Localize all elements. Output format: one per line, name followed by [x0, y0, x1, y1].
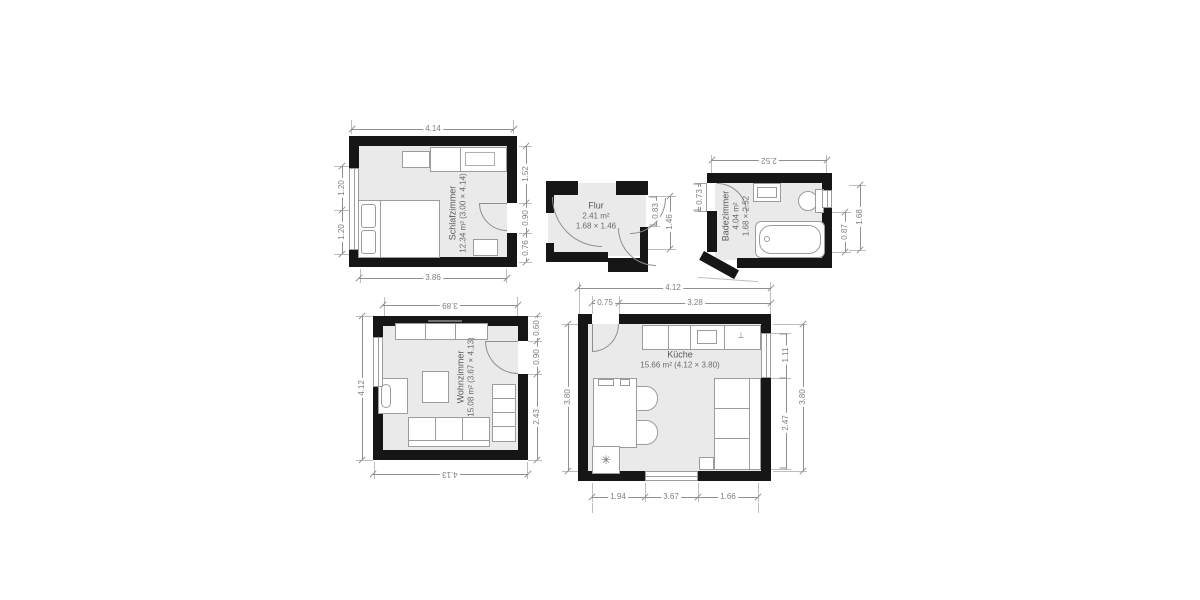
ext-line: [698, 483, 699, 502]
shelf-divider: [493, 412, 515, 413]
room-label-schlafzimmer: Schlafzimmer 12.34 m² (3.00 × 4.14): [447, 173, 468, 252]
window-pane-line: [827, 191, 828, 207]
tv: [428, 320, 462, 322]
shelf: [492, 384, 516, 442]
table-setting: [620, 379, 630, 386]
sink-basin: [757, 187, 777, 198]
window-pane-line: [766, 334, 767, 377]
dim-label: 3.28: [685, 299, 705, 307]
dresser: [402, 151, 430, 168]
room-label-kueche: Küche 15.66 m² (4.12 × 3.80): [640, 349, 719, 370]
sofa-cushion-divider: [715, 408, 749, 409]
faucet-symbol: ⊥: [738, 332, 745, 340]
counter-divider: [668, 326, 669, 349]
schlafzimmer-wall-bottom: [349, 257, 517, 267]
dim-tick: [524, 470, 531, 477]
sofa-back-line: [749, 379, 750, 469]
kitchen-sink: [697, 330, 717, 344]
dim-label: 4.12: [663, 284, 683, 292]
badezimmer-wall-right-upper: [822, 173, 832, 190]
badezimmer-wall-top: [707, 173, 832, 183]
window-wohnzimmer: [373, 337, 383, 387]
schlafzimmer-wall-right-lower: [507, 233, 517, 257]
room-name: Schlafzimmer: [447, 173, 458, 252]
ext-line: [592, 503, 593, 513]
dim-hook: [780, 378, 787, 379]
dim-label: 2.43: [533, 407, 541, 427]
flur-wall-bottom-left: [546, 252, 608, 262]
pillow: [361, 230, 376, 254]
floor-plan: Schlafzimmer 12.34 m² (3.00 × 4.14) 4.14…: [0, 0, 1200, 600]
wohnzimmer-wall-right-upper: [518, 326, 528, 341]
chair: [636, 386, 658, 411]
dim-tick: [767, 284, 774, 291]
bathtub-drain: [764, 236, 770, 242]
window-kueche: [761, 333, 771, 378]
armchair-cushion: [381, 384, 391, 408]
room-area: 15.08 m² (3.67 × 4.13): [467, 337, 477, 416]
ext-line: [562, 324, 578, 325]
window-schlafzimmer: [349, 168, 359, 250]
bedside-desk: [473, 239, 498, 256]
dim-label: 2.47: [782, 413, 790, 433]
badezimmer-wall-left: [707, 211, 717, 252]
sofa-divider: [435, 418, 436, 440]
room-name: Flur: [576, 200, 616, 211]
room-label-badezimmer: Badezimmer 4.04 m² 1.68 × 2.52: [720, 191, 751, 242]
ext-line: [592, 296, 593, 314]
door-threshold-line: [646, 476, 697, 477]
ext-line: [562, 471, 578, 472]
dim-tick: [510, 125, 517, 132]
kueche-wall-top-main: [619, 314, 771, 324]
wardrobe-shelf: [465, 152, 495, 166]
kitchen-sofa: [714, 378, 761, 470]
dim-tick: [767, 299, 774, 306]
room-area: 2.41 m²: [576, 212, 616, 222]
dim-hook: [780, 334, 787, 335]
dim-label: 1.68: [856, 207, 864, 227]
dim-label: 2.52: [759, 156, 779, 164]
room-size: 1.68 × 2.52: [742, 191, 752, 242]
wohnzimmer-wall-left-upper: [373, 326, 383, 337]
wohnzimmer-wall-bottom: [373, 450, 528, 460]
dim-label: 4.14: [423, 125, 443, 133]
badezimmer-wall-bottom: [737, 258, 832, 268]
dim-hook: [694, 210, 701, 211]
ext-line: [619, 296, 620, 314]
shelf-divider: [493, 398, 515, 399]
dim-label: 0.60: [533, 318, 541, 338]
ext-line: [592, 483, 593, 502]
dim-hook: [780, 468, 787, 469]
dim-label: 0.90: [522, 208, 530, 228]
sofa-cushion-divider: [715, 438, 749, 439]
sideboard-divider: [425, 324, 426, 339]
room-label-wohnzimmer: Wohnzimmer 15.08 m² (3.67 × 4.13): [455, 337, 476, 416]
ext-line: [758, 503, 759, 513]
dim-label: 1.66: [718, 493, 738, 501]
room-name: Badezimmer: [720, 191, 731, 242]
dim-label: 1.52: [522, 164, 530, 184]
sofa-seat-line: [409, 440, 489, 441]
table-setting: [598, 379, 614, 386]
wohnzimmer-wall-right-lower: [518, 374, 528, 450]
shelf-divider: [493, 426, 515, 427]
schlafzimmer-wall-top: [349, 136, 517, 146]
schlafzimmer-wall-right-upper: [507, 146, 517, 203]
dim-label: 4.13: [440, 470, 460, 478]
ext-line: [527, 462, 528, 479]
dim-hook: [650, 197, 657, 198]
kueche-balcony-door: [645, 471, 698, 481]
bed-blanket-line: [380, 201, 381, 257]
kueche-wall-bottom-right: [698, 471, 771, 481]
dim-label: 1.11: [782, 346, 790, 365]
ext-line: [758, 483, 759, 502]
kueche-wall-left: [578, 314, 588, 481]
dim-label: 1.94: [608, 493, 628, 501]
dim-tick: [823, 156, 830, 163]
counter-divider: [690, 326, 691, 349]
dim-label: 3.67: [661, 493, 681, 501]
dim-hook: [650, 225, 657, 226]
room-area: 12.34 m² (3.00 × 4.14): [459, 173, 469, 252]
kueche-wall-right-lower: [761, 378, 771, 481]
dim-label: 0.87: [841, 222, 849, 242]
ext-line: [698, 277, 758, 282]
counter-divider: [724, 326, 725, 349]
ext-line: [384, 297, 385, 316]
kueche-wall-right-upper: [761, 314, 771, 333]
freezer-icon: ✳: [601, 454, 611, 466]
dim-label: 1.20: [338, 178, 346, 198]
room-size: 1.68 × 1.46: [576, 222, 616, 232]
room-label-flur: Flur 2.41 m² 1.68 × 1.46: [576, 200, 616, 231]
dim-tick: [514, 301, 521, 308]
dim-label: 3.89: [440, 301, 460, 309]
window-pane-line: [354, 169, 355, 249]
room-name: Küche: [640, 349, 719, 360]
window-badezimmer: [822, 190, 832, 208]
dim-label: 0.83: [652, 201, 660, 221]
side-table: [699, 457, 714, 470]
ext-line: [645, 483, 646, 502]
dim-label: 3.80: [564, 387, 572, 407]
dining-table: [593, 378, 637, 448]
dim-label: 3.86: [423, 274, 443, 282]
dim-label: 1.20: [338, 222, 346, 242]
flur-wall-top-right: [616, 181, 648, 195]
sofa: [408, 417, 490, 447]
coffee-table: [422, 371, 449, 403]
dim-label: 0.90: [533, 347, 541, 367]
dim-label: 0.76: [522, 238, 530, 258]
pillow: [361, 204, 376, 228]
dim-label: 3.80: [799, 387, 807, 407]
chair: [636, 420, 658, 445]
room-name: Wohnzimmer: [455, 337, 466, 416]
window-pane-line: [378, 338, 379, 386]
dim-label: 1.46: [666, 212, 674, 232]
dim-label: 4.12: [358, 378, 366, 398]
sofa-divider: [462, 418, 463, 440]
dim-label: 0.73: [696, 187, 704, 207]
ext-line: [771, 469, 791, 470]
wardrobe-divider: [460, 148, 461, 171]
dim-hook: [694, 184, 701, 185]
room-area: 15.66 m² (4.12 × 3.80): [640, 361, 719, 371]
room-area: 4.04 m²: [732, 191, 742, 242]
schlafzimmer-wall-left-upper: [349, 146, 359, 168]
dim-label: 0.75: [595, 299, 615, 307]
dim-tick: [503, 274, 510, 281]
